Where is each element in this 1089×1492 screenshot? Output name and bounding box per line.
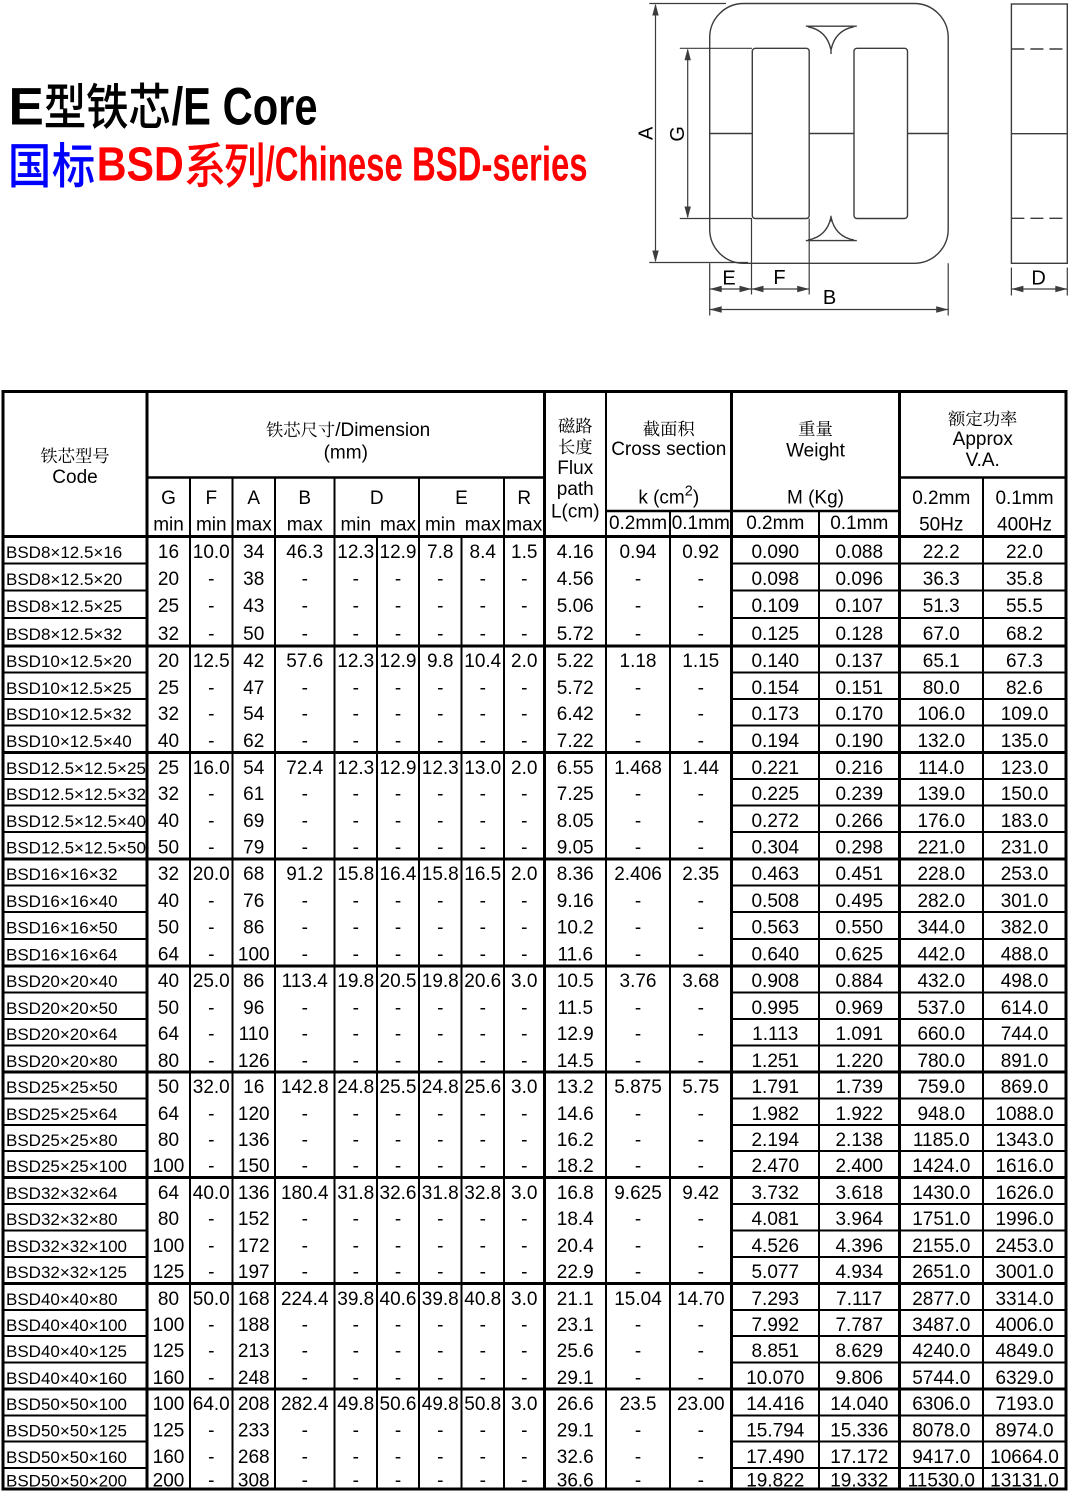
svg-text:max: max: [506, 515, 542, 536]
svg-text:min: min: [425, 515, 456, 536]
svg-text:Cross section: Cross section: [611, 439, 726, 460]
svg-text:/Dimension: /Dimension: [335, 420, 430, 441]
svg-text:BSD50×50×125125-233------29.1-: BSD50×50×125125-233------29.1--15.79415.…: [6, 1421, 1054, 1442]
svg-text:path: path: [557, 479, 594, 500]
svg-text:BSD25×25×100100-150------18.2-: BSD25×25×100100-150------18.2--2.4702.40…: [6, 1156, 1054, 1177]
svg-text:BSD8×12.5×3232-50------5.72--0: BSD8×12.5×3232-50------5.72--0.1250.1286…: [6, 624, 1043, 645]
svg-text:BSD10×12.5×2525-47------5.72--: BSD10×12.5×2525-47------5.72--0.1540.151…: [6, 678, 1043, 699]
svg-text:BSD40×40×808050.0168224.439.84: BSD40×40×808050.0168224.439.840.639.840.…: [6, 1289, 1054, 1310]
svg-text:(mm): (mm): [324, 443, 368, 464]
svg-text:0.1mm: 0.1mm: [995, 488, 1053, 509]
svg-text:A: A: [635, 126, 657, 140]
svg-text:BSD40×40×100100-188------23.1-: BSD40×40×100100-188------23.1--7.9927.78…: [6, 1315, 1054, 1336]
svg-text:max: max: [380, 515, 416, 536]
svg-text:0.1mm: 0.1mm: [672, 513, 730, 534]
svg-text:0.1mm: 0.1mm: [830, 513, 888, 534]
svg-text:BSD32×32×646440.0136180.431.83: BSD32×32×646440.0136180.431.832.631.832.…: [6, 1183, 1054, 1204]
svg-text:B: B: [298, 488, 311, 509]
svg-text:max: max: [287, 515, 323, 536]
svg-text:BSD32×32×8080-152------18.4--4: BSD32×32×8080-152------18.4--4.0813.9641…: [6, 1209, 1054, 1230]
svg-text:V.A.: V.A.: [966, 450, 1000, 471]
svg-text:E: E: [455, 488, 468, 509]
svg-text:L(cm): L(cm): [551, 502, 600, 523]
svg-text:BSD16×16×5050-86------10.2--0.: BSD16×16×5050-86------10.2--0.5630.55034…: [6, 918, 1048, 939]
svg-text:BSD32×32×100100-172------20.4-: BSD32×32×100100-172------20.4--4.5264.39…: [6, 1236, 1054, 1257]
svg-text:0.2mm: 0.2mm: [912, 488, 970, 509]
svg-text:BSD25×25×6464-120------14.6--1: BSD25×25×6464-120------14.6--1.9821.9229…: [6, 1104, 1054, 1125]
svg-text:/E Core: /E Core: [172, 78, 318, 137]
svg-text:BSD10×12.5×3232-54------6.42--: BSD10×12.5×3232-54------6.42--0.1730.170…: [6, 704, 1048, 725]
svg-text:BSD12.5×12.5×3232-61------7.25: BSD12.5×12.5×3232-61------7.25--0.2250.2…: [6, 784, 1048, 805]
svg-text:BSD8×12.5×2525-43------5.06--0: BSD8×12.5×2525-43------5.06--0.1090.1075…: [6, 596, 1043, 617]
svg-text:BSD8×12.5×161610.03446.312.312: BSD8×12.5×161610.03446.312.312.97.88.41.…: [6, 542, 1043, 563]
svg-text:D: D: [370, 488, 384, 509]
svg-text:M (Kg): M (Kg): [787, 488, 844, 509]
svg-text:BSD20×20×6464-110------12.9--1: BSD20×20×6464-110------12.9--1.1131.0916…: [6, 1024, 1048, 1045]
svg-text:F: F: [773, 267, 785, 289]
svg-text:0.2mm: 0.2mm: [609, 513, 667, 534]
svg-text:BSD40×40×125125-213------25.6-: BSD40×40×125125-213------25.6--8.8518.62…: [6, 1341, 1054, 1362]
svg-text:min: min: [340, 515, 371, 536]
svg-text:Weight: Weight: [786, 441, 846, 462]
svg-text:G: G: [161, 488, 176, 509]
svg-text:BSD16×16×4040-76------9.16--0.: BSD16×16×4040-76------9.16--0.5080.49528…: [6, 891, 1048, 912]
svg-text:E: E: [722, 268, 735, 290]
svg-text:Flux: Flux: [557, 458, 593, 479]
svg-text:BSD32×32×125125-197------22.9-: BSD32×32×125125-197------22.9--5.0774.93…: [6, 1262, 1054, 1283]
svg-text:BSD20×20×5050-96------11.5--0.: BSD20×20×5050-96------11.5--0.9950.96953…: [6, 998, 1048, 1019]
svg-text:D: D: [1031, 268, 1045, 290]
svg-text:BSD25×25×505032.016142.824.825: BSD25×25×505032.016142.824.825.524.825.6…: [6, 1077, 1048, 1098]
svg-text:E: E: [9, 78, 44, 137]
svg-text:k (cm2): k (cm2): [638, 484, 699, 509]
svg-text:min: min: [153, 515, 184, 536]
svg-text:Code: Code: [52, 467, 97, 488]
svg-text:BSD20×20×8080-126------14.5--1: BSD20×20×8080-126------14.5--1.2511.2207…: [6, 1051, 1048, 1072]
svg-text:BSD10×12.5×202012.54257.612.31: BSD10×12.5×202012.54257.612.312.99.810.4…: [6, 651, 1043, 672]
svg-text:max: max: [236, 515, 272, 536]
svg-text:400Hz: 400Hz: [997, 515, 1052, 536]
svg-text:Approx: Approx: [953, 429, 1014, 450]
svg-text:BSD: BSD: [97, 139, 184, 192]
svg-text:BSD20×20×404025.086113.419.820: BSD20×20×404025.086113.419.820.519.820.6…: [6, 971, 1048, 992]
svg-text:BSD50×50×10010064.0208282.449.: BSD50×50×10010064.0208282.449.850.649.85…: [6, 1394, 1054, 1415]
svg-text:BSD8×12.5×2020-38------4.56--0: BSD8×12.5×2020-38------4.56--0.0980.0963…: [6, 569, 1043, 590]
svg-text:BSD12.5×12.5×252516.05472.412.: BSD12.5×12.5×252516.05472.412.312.912.31…: [6, 758, 1048, 779]
svg-text:0.2mm: 0.2mm: [746, 513, 804, 534]
svg-text:F: F: [205, 488, 217, 509]
svg-text:BSD16×16×6464-100------11.6--0: BSD16×16×6464-100------11.6--0.6400.6254…: [6, 945, 1048, 966]
svg-text:R: R: [517, 488, 531, 509]
svg-text:min: min: [196, 515, 227, 536]
svg-text:50Hz: 50Hz: [919, 515, 963, 536]
svg-text:BSD25×25×8080-136------16.2--2: BSD25×25×8080-136------16.2--2.1942.1381…: [6, 1130, 1054, 1151]
svg-text:G: G: [667, 126, 689, 142]
svg-text:BSD12.5×12.5×5050-79------9.05: BSD12.5×12.5×5050-79------9.05--0.3040.2…: [6, 838, 1048, 859]
svg-text:/Chinese BSD-series: /Chinese BSD-series: [266, 139, 588, 192]
svg-text:B: B: [823, 287, 836, 309]
svg-text:BSD10×12.5×4040-62------7.22--: BSD10×12.5×4040-62------7.22--0.1940.190…: [6, 731, 1048, 752]
svg-text:A: A: [247, 488, 260, 509]
svg-text:BSD12.5×12.5×4040-69------8.05: BSD12.5×12.5×4040-69------8.05--0.2720.2…: [6, 811, 1048, 832]
svg-text:max: max: [465, 515, 501, 536]
svg-text:BSD40×40×160160-248------29.1-: BSD40×40×160160-248------29.1--10.0709.8…: [6, 1368, 1054, 1389]
svg-text:BSD16×16×323220.06891.215.816.: BSD16×16×323220.06891.215.816.415.816.52…: [6, 864, 1048, 885]
